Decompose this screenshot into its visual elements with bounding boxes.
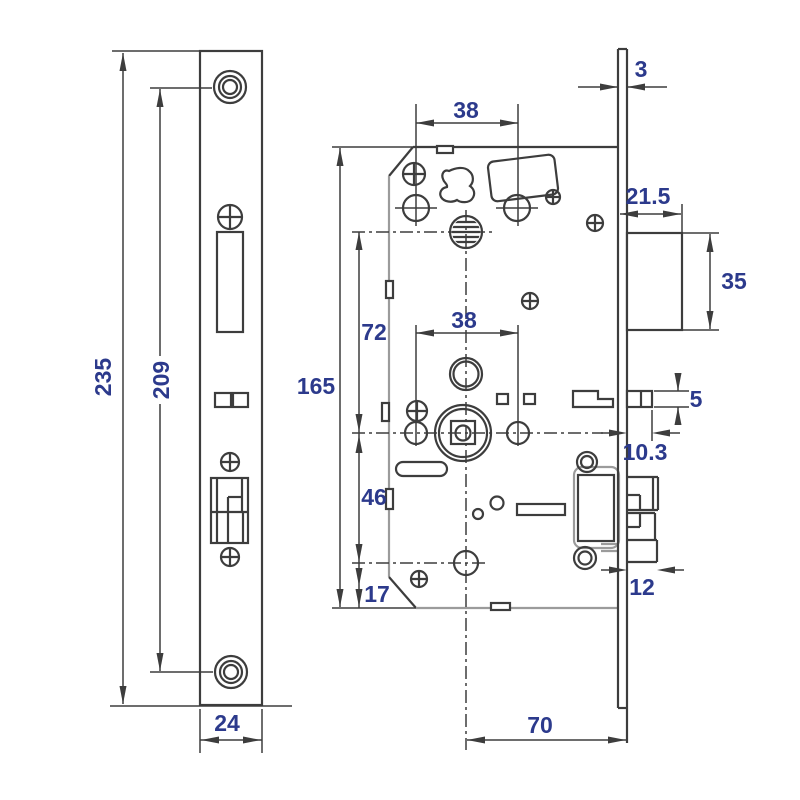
mortise-lock-technical-drawing: 235 209 24 3 38 38: [0, 0, 800, 800]
small-hole: [473, 509, 483, 519]
lock-case-view: [382, 146, 619, 610]
dim-latch-protrusion: 21.5: [626, 183, 671, 209]
case-top-chamfer: [389, 147, 413, 176]
screw-icon: [218, 205, 242, 229]
screw-icon: [406, 400, 428, 422]
screw-icon: [220, 547, 240, 567]
case-left-tab: [386, 489, 393, 509]
square-hole: [497, 394, 508, 404]
dim-top-hole-spacing: 38: [453, 97, 479, 123]
deadbolt-mechanism: [574, 452, 619, 569]
dim-faceplate-height: 235: [90, 358, 116, 397]
dim-screw-centers: 209: [148, 361, 174, 399]
dim-deadlatch-protrusion: 10.3: [623, 439, 668, 465]
deadlatch-inner: [573, 391, 613, 407]
latch-bolt-side: [627, 233, 682, 330]
deadbolt-side: [627, 477, 658, 562]
dim-faceplate-width: 24: [214, 710, 240, 736]
case-bottom-tab: [491, 603, 510, 610]
deadlatch-pin-side: [627, 391, 652, 407]
faceplate-outline: [200, 51, 262, 705]
spring-plate: [487, 154, 558, 202]
dim-case-height: 165: [297, 373, 336, 399]
case-top-tab: [437, 146, 453, 153]
screw-icon: [220, 452, 240, 472]
small-hole: [491, 497, 504, 510]
screw-icon: [586, 214, 604, 232]
dim-hub-hole-spacing: 38: [451, 307, 477, 333]
dim-deadbolt-throw: 12: [629, 574, 655, 600]
lever-slot: [517, 504, 565, 515]
dim-cylinder-to-bottom: 17: [364, 581, 390, 607]
case-left-tab: [386, 281, 393, 298]
faceplate-front-view: [200, 51, 262, 705]
stop-cam: [440, 168, 474, 202]
dim-backset: 70: [527, 712, 553, 738]
dim-top-to-hub: 72: [361, 319, 387, 345]
screw-icon: [521, 292, 539, 310]
slot: [396, 462, 447, 476]
screw-icon: [410, 570, 428, 588]
dim-latch-height: 35: [721, 268, 747, 294]
screw-icon: [545, 189, 561, 205]
drawing-canvas: 235 209 24 3 38 38: [0, 0, 800, 800]
case-left-tab: [382, 403, 389, 421]
square-hole: [524, 394, 535, 404]
dim-deadlatch-height: 5: [690, 386, 703, 412]
side-plate-view: [618, 49, 682, 743]
dim-hub-to-cylinder: 46: [361, 484, 387, 510]
screw-icon: [403, 163, 425, 185]
dim-faceplate-thickness: 3: [635, 56, 648, 82]
